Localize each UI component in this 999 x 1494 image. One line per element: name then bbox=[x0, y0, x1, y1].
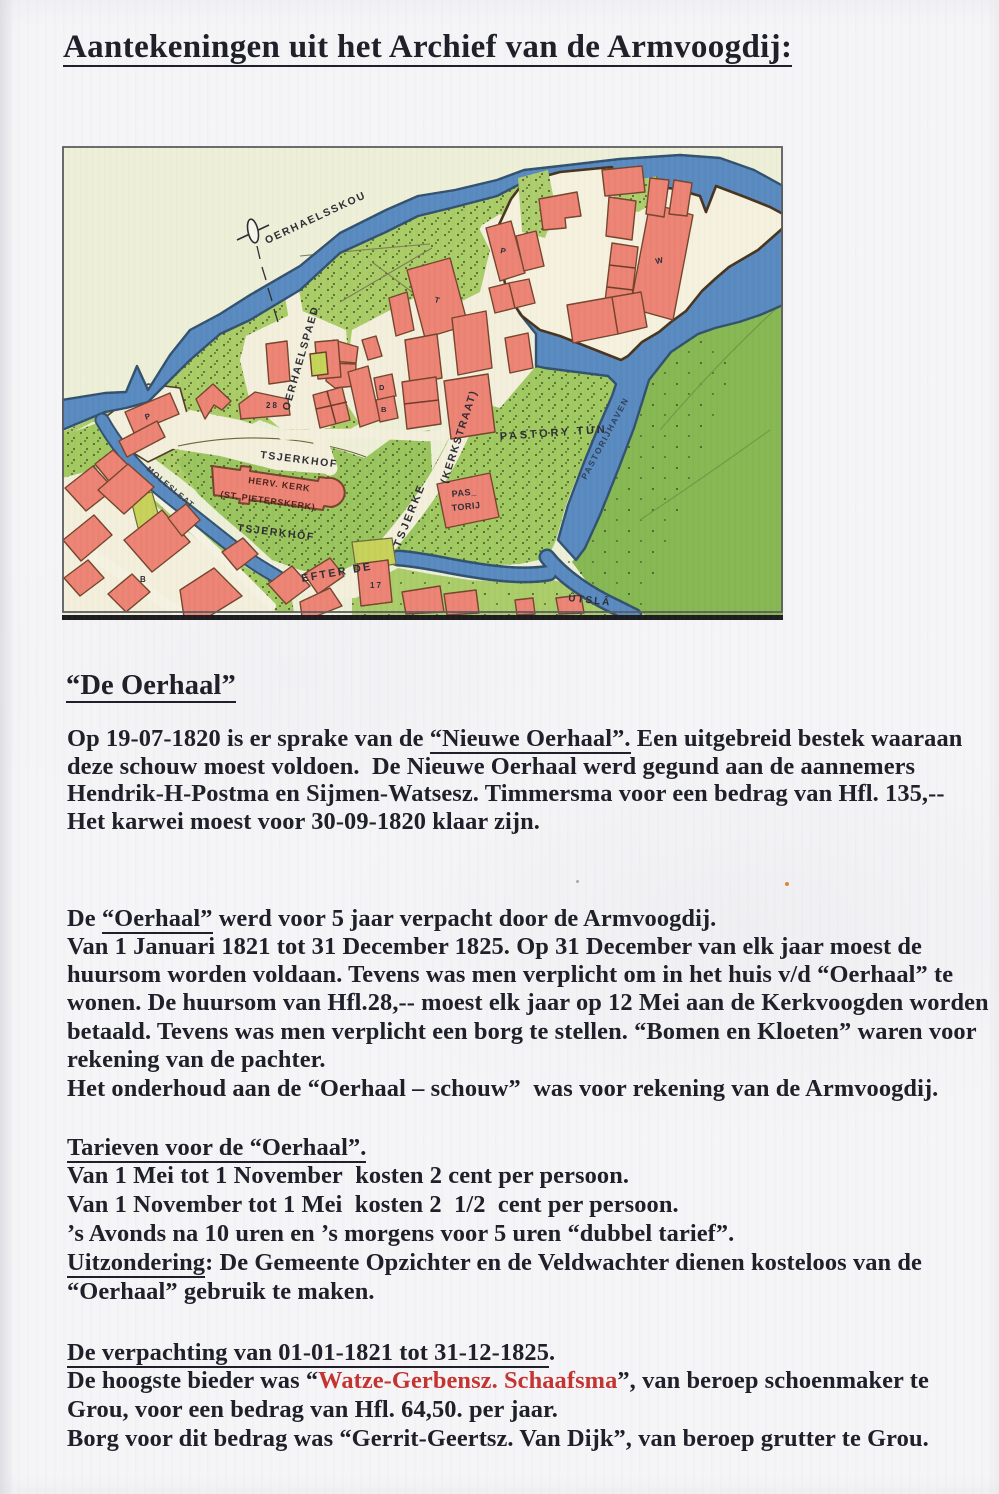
svg-text:28: 28 bbox=[266, 401, 279, 410]
svg-text:B: B bbox=[140, 575, 148, 584]
svg-text:17: 17 bbox=[370, 581, 383, 590]
svg-text:B: B bbox=[381, 405, 388, 414]
svg-text:D: D bbox=[379, 383, 386, 392]
